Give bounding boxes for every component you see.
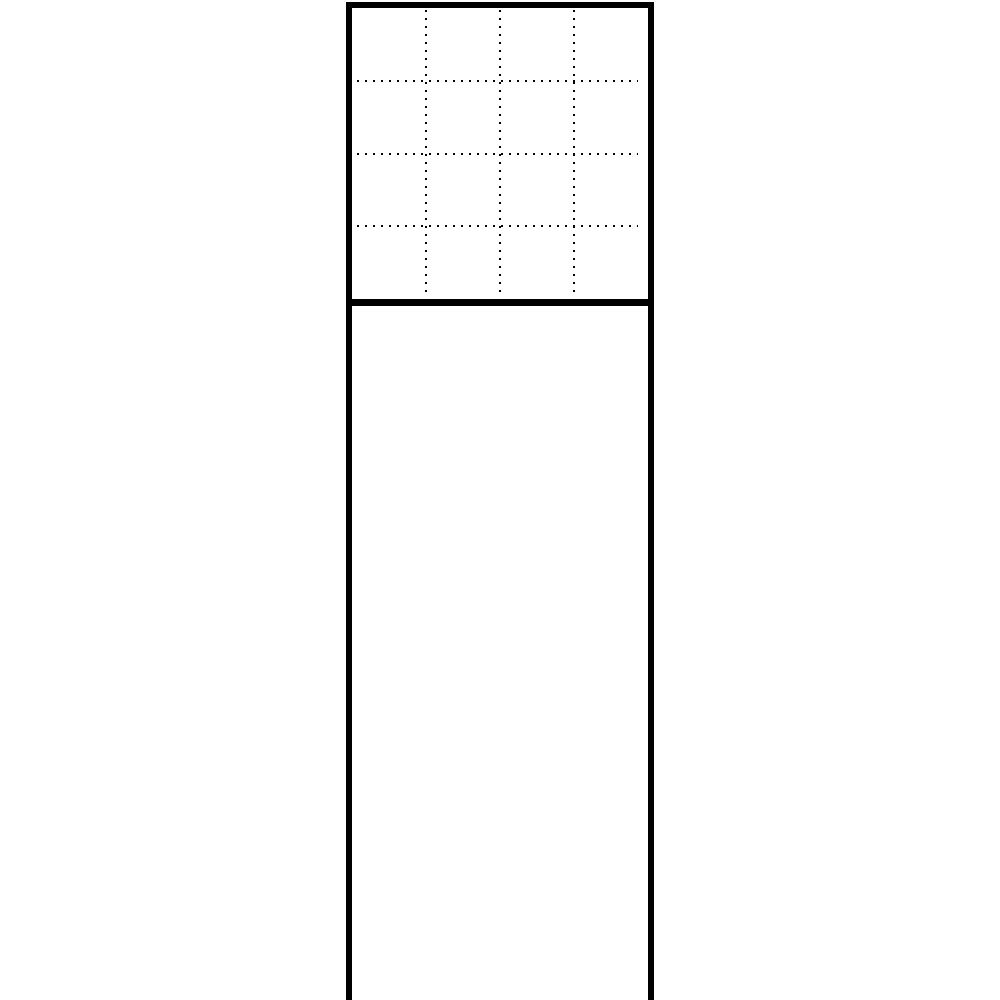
grid-line-vertical <box>573 10 575 295</box>
grid-panel <box>352 8 648 306</box>
grid-line-vertical <box>499 10 501 295</box>
grid-line-horizontal <box>357 153 638 155</box>
product-line-drawing <box>0 0 1000 1000</box>
grid-line-horizontal <box>357 225 638 227</box>
column-outline <box>346 2 654 1000</box>
grid-line-horizontal <box>357 80 638 82</box>
grid-line-vertical <box>425 10 427 295</box>
lower-shaft <box>352 313 648 1000</box>
